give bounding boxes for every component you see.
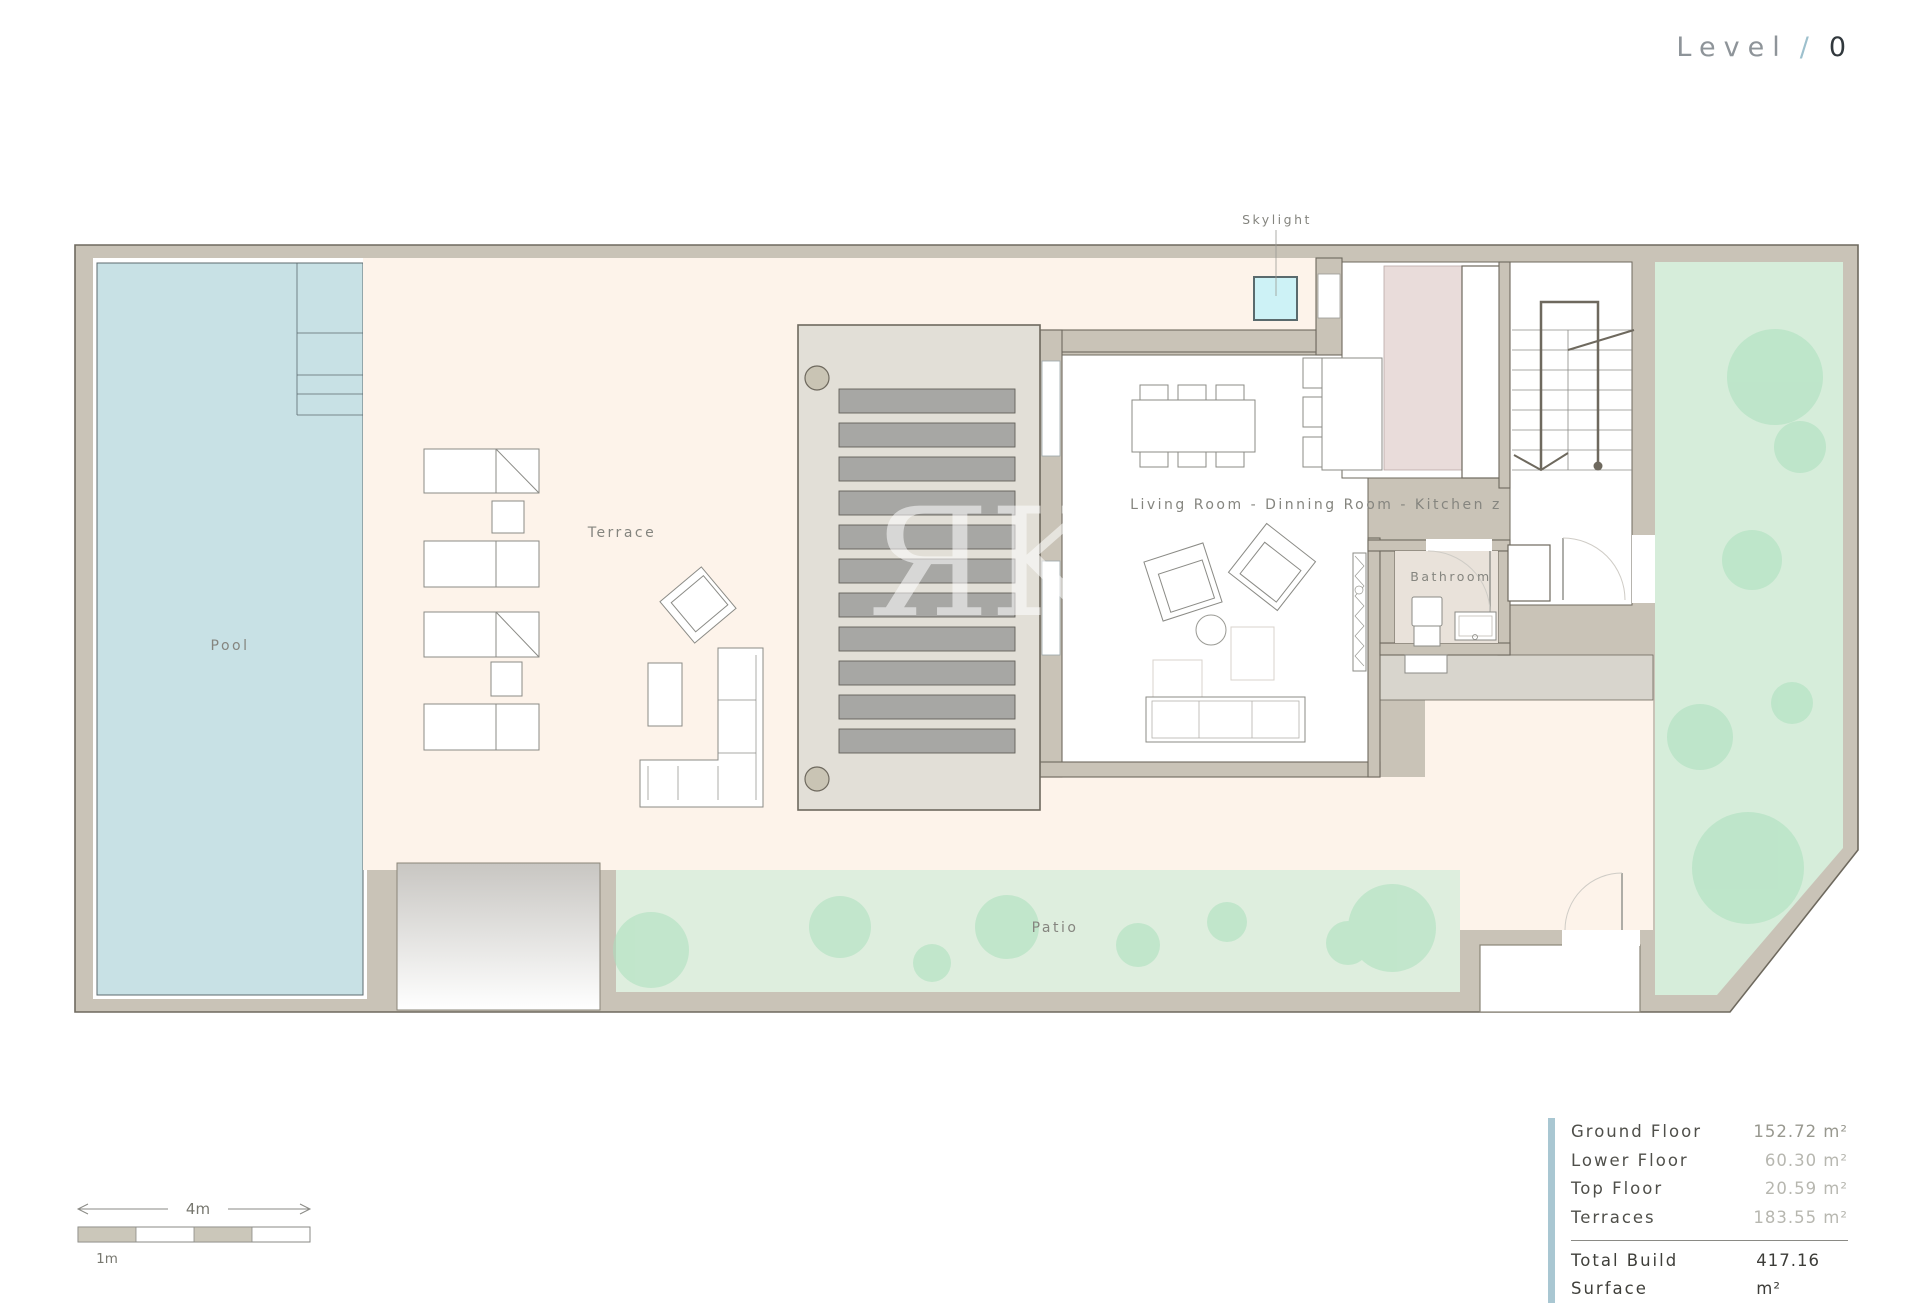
- skylight-label: Skylight: [1242, 212, 1312, 227]
- row-label: Top Floor: [1571, 1175, 1663, 1204]
- bathroom-step: [1405, 655, 1447, 673]
- terrace-label: Terrace: [587, 525, 656, 541]
- total-label: Total Build Surface: [1571, 1247, 1756, 1303]
- table-row: Top Floor 20.59 m²: [1571, 1175, 1848, 1204]
- pool-label: Pool: [211, 638, 250, 654]
- kitchen-island: [1322, 358, 1382, 470]
- table-divider: [1571, 1240, 1848, 1241]
- side-table: [491, 662, 522, 696]
- dining-table: [1132, 400, 1255, 452]
- area-summary-table: Ground Floor 152.72 m² Lower Floor 60.30…: [1548, 1118, 1848, 1303]
- pool-area: [93, 258, 367, 999]
- patio-area: [540, 870, 1460, 992]
- row-label: Ground Floor: [1571, 1118, 1702, 1147]
- scale-total-label: 4m: [186, 1200, 210, 1218]
- row-label: Terraces: [1571, 1204, 1656, 1233]
- bar-stools: [1303, 358, 1322, 467]
- toilet-seat: [1414, 626, 1440, 646]
- row-value: 60.30 m²: [1765, 1147, 1848, 1176]
- toilet: [1412, 597, 1442, 626]
- scale-unit-label: 1m: [96, 1251, 118, 1267]
- floorplan-page: ЯK Skylight Pool Terrace Living Room - D…: [0, 0, 1920, 1280]
- table-total-row: Total Build Surface 417.16 m²: [1571, 1247, 1848, 1303]
- skylight-glass: [1254, 277, 1297, 320]
- row-label: Lower Floor: [1571, 1147, 1689, 1176]
- living-bottom-wall: [1040, 762, 1380, 777]
- table-row: Lower Floor 60.30 m²: [1571, 1147, 1848, 1176]
- hall-closet: [1508, 545, 1550, 601]
- sofa: [1146, 697, 1305, 742]
- table-row: Ground Floor 152.72 m²: [1571, 1118, 1848, 1147]
- entry-porch: [1480, 945, 1640, 1012]
- coffee-table: [648, 663, 682, 726]
- watermark-logo: ЯK: [868, 477, 1104, 651]
- living-right-wall: [1368, 538, 1380, 777]
- kitchen: [1303, 258, 1500, 478]
- table-row: Terraces 183.55 m²: [1571, 1204, 1848, 1233]
- dining-set: [1132, 385, 1255, 467]
- page-title: Level/0: [1676, 32, 1848, 63]
- row-value: 152.72 m²: [1753, 1118, 1848, 1147]
- bathroom-left-wall: [1380, 551, 1395, 643]
- patio-label: Patio: [1032, 920, 1079, 936]
- window-glass: [1042, 361, 1060, 456]
- kitchen-cabinets: [1462, 266, 1500, 478]
- round-side-table: [1196, 615, 1226, 645]
- row-value: 20.59 m²: [1765, 1175, 1848, 1204]
- total-value: 417.16 m²: [1756, 1247, 1848, 1303]
- bathroom-door-opening: [1426, 539, 1492, 552]
- kitchen-niche: [1318, 274, 1340, 318]
- wardrobe-knob: [1355, 586, 1363, 594]
- floorplan-drawing: ЯK Skylight Pool Terrace Living Room - D…: [0, 0, 1920, 1280]
- side-table: [492, 501, 524, 533]
- patio-door-opening: [1562, 930, 1640, 946]
- row-value: 183.55 m²: [1753, 1204, 1848, 1233]
- handrail-end: [1594, 462, 1603, 471]
- living-top-wall: [1040, 330, 1316, 352]
- bathroom-bottom-wall: [1380, 643, 1510, 655]
- ramp: [397, 863, 600, 1010]
- pool: [97, 263, 363, 995]
- bathroom-label: Bathroom: [1410, 569, 1491, 584]
- stair-wall: [1499, 262, 1510, 488]
- entrance-opening: [1632, 535, 1655, 603]
- scale-bar: 4m 1m: [78, 1200, 310, 1267]
- pergola-column: [805, 767, 829, 791]
- living-room-label: Living Room - Dinning Room - Kitchen z: [1130, 497, 1502, 513]
- kitchen-counter: [1384, 266, 1462, 470]
- pergola-column: [805, 366, 829, 390]
